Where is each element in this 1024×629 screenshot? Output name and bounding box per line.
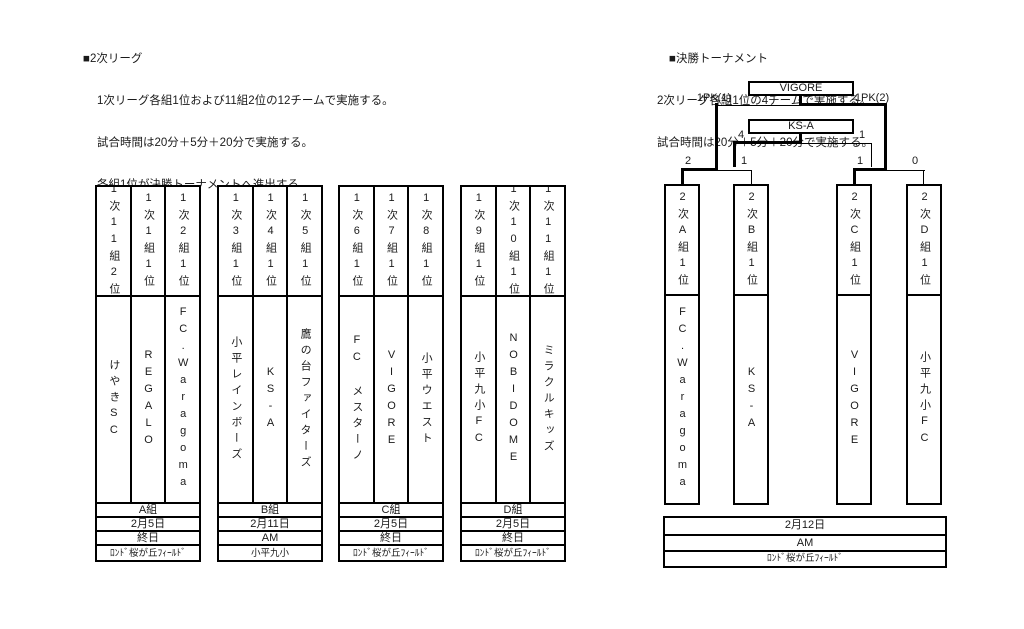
group-d-slot-3: 1次11組1位 ミラクルキッズ xyxy=(529,187,564,502)
tournament-date: 2月12日 xyxy=(665,518,945,534)
bracket-slot-c: 2次C組1位 VIGORE xyxy=(836,184,872,505)
seed-label: 1次4組1位 xyxy=(265,192,276,291)
semifinal2-score-left: 1 xyxy=(830,155,890,167)
team-label: VIGORE xyxy=(849,349,860,451)
group-time: 終日 xyxy=(462,530,564,544)
team-label: 小平九小FC xyxy=(473,351,484,449)
semifinal2-line-right xyxy=(886,170,925,171)
seed-label: 2次D組1位 xyxy=(919,191,930,290)
group-d-columns: 1次9組1位 小平九小FC 1次10組1位 NOBIDOME 1次11組1位 ミ… xyxy=(462,187,564,502)
group-time: AM xyxy=(219,530,321,544)
group-venue: ﾛﾝﾄﾞ桜が丘ﾌｨｰﾙﾄﾞ xyxy=(340,544,442,561)
seed-cell: 2次C組1位 xyxy=(838,186,870,296)
team-label: FC メスターノ xyxy=(351,334,362,465)
seed-cell: 2次B組1位 xyxy=(735,186,767,296)
group-time: 終日 xyxy=(340,530,442,544)
group-date: 2月11日 xyxy=(219,516,321,530)
team-cell: 小平ウエスト xyxy=(409,297,442,502)
group-c-slot-3: 1次8組1位 小平ウエスト xyxy=(407,187,442,502)
team-cell: FC.Waragoma xyxy=(166,297,199,502)
seed-cell: 1次9組1位 xyxy=(462,187,495,297)
team-cell: NOBIDOME xyxy=(497,297,530,502)
second-league-desc-2: 試合時間は20分＋5分＋20分で実施する。 xyxy=(97,136,394,150)
group-d-slot-1: 1次9組1位 小平九小FC xyxy=(462,187,495,502)
seed-label: 2次A組1位 xyxy=(677,191,688,290)
team-cell: KS-A xyxy=(735,296,767,503)
team-cell: ミラクルキッズ xyxy=(531,297,564,502)
second-league-desc-1: 1次リーグ各組1位および11組2位の12チームで実施する。 xyxy=(97,94,394,108)
semifinal1-score-right: 1 xyxy=(714,155,774,167)
seed-label: 1次9組1位 xyxy=(473,192,484,291)
seed-label: 1次5組1位 xyxy=(299,192,310,291)
group-date: 2月5日 xyxy=(97,516,199,530)
group-c-columns: 1次6組1位 FC メスターノ 1次7組1位 VIGORE 1次8組1位 小平ウ… xyxy=(340,187,442,502)
seed-label: 1次11組2位 xyxy=(108,187,119,297)
team-label: VIGORE xyxy=(386,349,397,451)
team-cell: FC.Waragoma xyxy=(666,296,698,503)
seed-cell: 1次11組1位 xyxy=(531,187,564,297)
semifinal1-line-left xyxy=(681,168,718,171)
group-venue: ﾛﾝﾄﾞ桜が丘ﾌｨｰﾙﾄﾞ xyxy=(462,544,564,561)
group-a-table: 1次11組2位 けやきSC 1次1組1位 REGALO 1次2組1位 FC.Wa… xyxy=(95,185,201,562)
group-d-slot-2: 1次10組1位 NOBIDOME xyxy=(495,187,530,502)
seed-label: 1次6組1位 xyxy=(351,192,362,291)
seed-cell: 1次1組1位 xyxy=(132,187,165,297)
group-b-columns: 1次3組1位 小平レインボーズ 1次4組1位 KS-A 1次5組1位 鷹の台ファ… xyxy=(219,187,321,502)
final-score-left: 1PK(1) xyxy=(684,92,744,104)
group-name: D組 xyxy=(462,502,564,516)
seed-cell: 1次11組2位 xyxy=(97,187,130,297)
team-label: NOBIDOME xyxy=(508,332,519,468)
second-league-title: ■2次リーグ xyxy=(83,52,394,66)
seed-cell: 1次4組1位 xyxy=(254,187,287,297)
group-a-slot-3: 1次2組1位 FC.Waragoma xyxy=(164,187,199,502)
group-name: C組 xyxy=(340,502,442,516)
third-place-line-left xyxy=(733,141,802,144)
team-label: REGALO xyxy=(143,349,154,451)
seed-cell: 1次2組1位 xyxy=(166,187,199,297)
third-place-score-left: 4 xyxy=(711,129,771,141)
third-place-score-right: 1 xyxy=(832,129,892,141)
group-venue: ﾛﾝﾄﾞ桜が丘ﾌｨｰﾙﾄﾞ xyxy=(97,544,199,561)
team-cell: FC メスターノ xyxy=(340,297,373,502)
team-label: ミラクルキッズ xyxy=(542,344,553,456)
seed-label: 2次B組1位 xyxy=(746,191,757,290)
team-cell: 小平九小FC xyxy=(462,297,495,502)
team-label: KS-A xyxy=(265,366,276,434)
seed-label: 1次11組1位 xyxy=(542,187,553,297)
seed-cell: 2次D組1位 xyxy=(908,186,940,296)
final-line-left xyxy=(716,105,802,106)
group-c-slot-1: 1次6組1位 FC メスターノ xyxy=(340,187,373,502)
group-a-slot-2: 1次1組1位 REGALO xyxy=(130,187,165,502)
group-b-table: 1次3組1位 小平レインボーズ 1次4組1位 KS-A 1次5組1位 鷹の台ファ… xyxy=(217,185,323,562)
seed-cell: 2次A組1位 xyxy=(666,186,698,296)
group-c-table: 1次6組1位 FC メスターノ 1次7組1位 VIGORE 1次8組1位 小平ウ… xyxy=(338,185,444,562)
team-cell: 鷹の台ファイターズ xyxy=(288,297,321,502)
group-b-slot-2: 1次4組1位 KS-A xyxy=(252,187,287,502)
team-label: 小平九小FC xyxy=(919,351,930,449)
tournament-time: AM xyxy=(665,534,945,550)
group-name: B組 xyxy=(219,502,321,516)
champion-box: VIGORE xyxy=(748,81,854,96)
seed-label: 1次10組1位 xyxy=(508,187,519,297)
group-d-table: 1次9組1位 小平九小FC 1次10組1位 NOBIDOME 1次11組1位 ミ… xyxy=(460,185,566,562)
seed-cell: 1次8組1位 xyxy=(409,187,442,297)
group-time: 終日 xyxy=(97,530,199,544)
semifinal2-score-right: 0 xyxy=(885,155,945,167)
group-c-slot-2: 1次7組1位 VIGORE xyxy=(373,187,408,502)
team-label: 小平ウエスト xyxy=(420,352,431,448)
group-a-slot-1: 1次11組2位 けやきSC xyxy=(97,187,130,502)
third-place-line-right xyxy=(801,143,872,144)
seed-label: 1次3組1位 xyxy=(230,192,241,291)
team-cell: VIGORE xyxy=(375,297,408,502)
seed-cell: 1次10組1位 xyxy=(497,187,530,297)
team-label: KS-A xyxy=(746,366,757,434)
team-cell: KS-A xyxy=(254,297,287,502)
group-b-slot-3: 1次5組1位 鷹の台ファイターズ xyxy=(286,187,321,502)
bracket-slot-b: 2次B組1位 KS-A xyxy=(733,184,769,505)
seed-cell: 1次7組1位 xyxy=(375,187,408,297)
team-cell: VIGORE xyxy=(838,296,870,503)
seed-label: 2次C組1位 xyxy=(849,191,860,290)
group-a-columns: 1次11組2位 けやきSC 1次1組1位 REGALO 1次2組1位 FC.Wa… xyxy=(97,187,199,502)
team-label: FC.Waragoma xyxy=(677,306,688,493)
team-cell: 小平レインボーズ xyxy=(219,297,252,502)
seed-label: 1次8組1位 xyxy=(420,192,431,291)
seed-cell: 1次3組1位 xyxy=(219,187,252,297)
semifinal1-line-right xyxy=(717,170,752,171)
team-label: 小平レインボーズ xyxy=(230,336,241,464)
team-cell: 小平九小FC xyxy=(908,296,940,503)
bracket-slot-a: 2次A組1位 FC.Waragoma xyxy=(664,184,700,505)
team-label: 鷹の台ファイターズ xyxy=(299,328,310,472)
seed-label: 1次2組1位 xyxy=(177,192,188,291)
team-cell: けやきSC xyxy=(97,297,130,502)
group-date: 2月5日 xyxy=(340,516,442,530)
tournament-schedule-table: 2月12日 AM ﾛﾝﾄﾞ桜が丘ﾌｨｰﾙﾄﾞ xyxy=(663,516,947,568)
final-tournament-title: ■決勝トーナメント xyxy=(669,52,873,66)
seed-label: 1次7組1位 xyxy=(386,192,397,291)
tournament-sheet: ■2次リーグ 1次リーグ各組1位および11組2位の12チームで実施する。 試合時… xyxy=(0,0,1024,629)
semifinal1-score-left: 2 xyxy=(658,155,718,167)
tournament-venue: ﾛﾝﾄﾞ桜が丘ﾌｨｰﾙﾄﾞ xyxy=(665,550,945,566)
team-label: けやきSC xyxy=(108,359,119,441)
final-score-right: 1PK(2) xyxy=(842,92,902,104)
group-venue: 小平九小 xyxy=(219,544,321,561)
seed-cell: 1次5組1位 xyxy=(288,187,321,297)
group-name: A組 xyxy=(97,502,199,516)
group-date: 2月5日 xyxy=(462,516,564,530)
team-cell: REGALO xyxy=(132,297,165,502)
bracket-slot-d: 2次D組1位 小平九小FC xyxy=(906,184,942,505)
seed-label: 1次1組1位 xyxy=(143,192,154,291)
semifinal2-line-left xyxy=(853,168,887,171)
team-label: FC.Waragoma xyxy=(177,306,188,493)
group-b-slot-1: 1次3組1位 小平レインボーズ xyxy=(219,187,252,502)
seed-cell: 1次6組1位 xyxy=(340,187,373,297)
